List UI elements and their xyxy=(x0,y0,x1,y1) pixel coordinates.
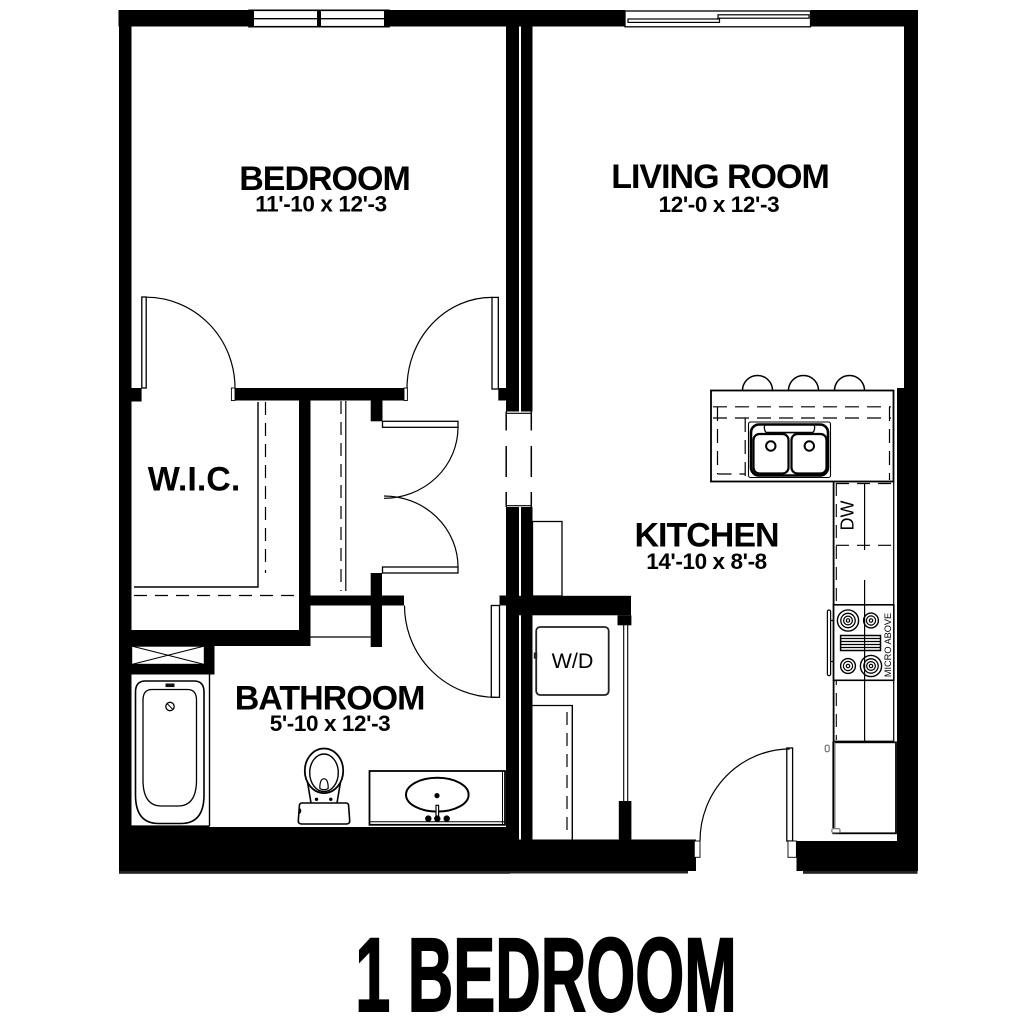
svg-text:LIVING ROOM: LIVING ROOM xyxy=(611,158,829,196)
svg-text:11'-10 x 12'-3: 11'-10 x 12'-3 xyxy=(255,192,386,217)
svg-text:5'-10 x 12'-3: 5'-10 x 12'-3 xyxy=(270,711,391,736)
svg-text:DW: DW xyxy=(838,501,858,531)
svg-text:14'-10 x 8'-8: 14'-10 x 8'-8 xyxy=(646,549,767,574)
svg-text:W.I.C.: W.I.C. xyxy=(148,461,241,499)
svg-text:12'-0 x 12'-3: 12'-0 x 12'-3 xyxy=(659,192,780,217)
svg-text:MICRO ABOVE: MICRO ABOVE xyxy=(883,613,893,677)
svg-text:W/D: W/D xyxy=(552,649,594,673)
svg-text:1 BEDROOM: 1 BEDROOM xyxy=(355,918,737,1024)
